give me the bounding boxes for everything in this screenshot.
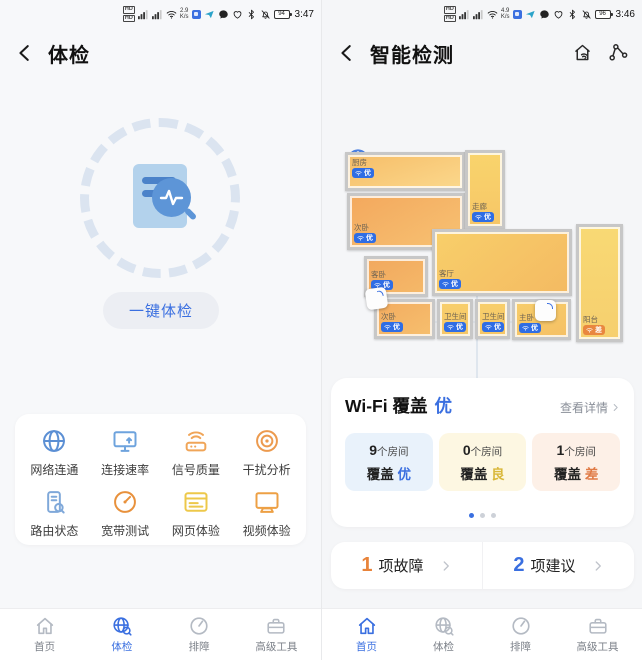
network-speed: 4.9K/s — [501, 8, 510, 20]
app-notification-icon — [204, 9, 215, 20]
health-icon — [433, 615, 455, 637]
coverage-badge: 差 — [583, 325, 605, 335]
header-actions — [572, 42, 629, 63]
tool-web-experience[interactable]: 网页体验 — [161, 488, 232, 539]
wifi-icon — [442, 281, 449, 287]
room-label: 卫生间 优 — [482, 313, 505, 332]
bottom-nav: 首页 体检 排障 高级工具 — [322, 608, 642, 660]
room-count: 9个房间 — [369, 442, 408, 459]
nav-label: 体检 — [433, 639, 454, 654]
view-details-link[interactable]: 查看详情 — [560, 399, 620, 416]
gauge-icon — [188, 615, 210, 637]
room-name: 次卧 — [354, 224, 369, 232]
tool-signal-quality[interactable]: 信号质量 — [161, 427, 232, 478]
tool-label: 网络连通 — [30, 461, 78, 478]
page-title: 智能检测 — [370, 39, 454, 68]
app-notification-icon — [525, 9, 536, 20]
nav-item-checkup[interactable]: 体检 — [416, 615, 472, 654]
room: 走廊 优 — [465, 150, 505, 229]
room: 卫生间 优 — [437, 299, 473, 339]
wifi-icon — [485, 324, 492, 330]
coverage-badge: 优 — [444, 322, 466, 332]
tool-interference-analysis[interactable]: 干扰分析 — [231, 427, 302, 478]
battery-icon: 96 — [595, 10, 611, 19]
volte-hd-icon: HDHD — [123, 6, 135, 22]
tool-video-experience[interactable]: 视频体验 — [231, 488, 302, 539]
home-icon — [356, 615, 378, 637]
room-name: 主卧 — [519, 314, 534, 322]
room-name: 卫生间 — [444, 313, 467, 321]
toolbox-icon — [587, 615, 609, 637]
wifi-icon — [355, 170, 362, 176]
webpage-icon — [182, 488, 210, 516]
room-name: 客卧 — [371, 271, 386, 279]
coverage-stat: 0个房间 覆盖 良 — [439, 433, 527, 491]
screenshot-root: HDHD 2.9K/s 94 3:47 体检 — [0, 0, 642, 660]
signal-router-icon — [182, 427, 210, 455]
room: 客厅 优 — [432, 229, 572, 296]
pagination-dot[interactable] — [480, 513, 485, 518]
room-name: 阳台 — [583, 316, 598, 324]
wifi-icon — [522, 325, 529, 331]
tool-connection-speed[interactable]: 连接速率 — [90, 427, 161, 478]
interference-icon — [253, 427, 281, 455]
network-speed: 2.9K/s — [180, 8, 189, 20]
tool-label: 宽带测试 — [101, 522, 149, 539]
floorplan-map[interactable]: 互联网 厨房 优 次卧 优 走廊 优 客厅 优 客卧 优 — [322, 70, 642, 370]
chevron-right-icon — [611, 403, 620, 412]
coverage-badge: 优 — [519, 323, 541, 333]
coverage-badge: 优 — [472, 212, 494, 222]
pagination-dots[interactable] — [331, 513, 634, 518]
room: 阳台 差 — [576, 224, 623, 342]
wifi-card-title: Wi-Fi 覆盖优 — [345, 393, 452, 418]
router-icon — [365, 287, 389, 311]
tool-network-connectivity[interactable]: 网络连通 — [19, 427, 90, 478]
nav-label: 排障 — [510, 639, 531, 654]
signal-icon — [138, 9, 149, 20]
room-label: 阳台 差 — [583, 316, 605, 335]
bell-muted-icon — [581, 9, 592, 20]
app-notification-icon — [513, 10, 522, 19]
video-icon — [253, 488, 281, 516]
suggestions-item[interactable]: 2 项建议 — [482, 542, 634, 589]
nav-item-troubleshoot[interactable]: 排障 — [171, 615, 227, 654]
faults-item[interactable]: 1 项故障 — [331, 542, 482, 589]
coverage-stat: 9个房间 覆盖 优 — [345, 433, 433, 491]
volte-hd-icon: HDHD — [444, 6, 456, 22]
pagination-dot[interactable] — [491, 513, 496, 518]
wifi-icon — [357, 235, 364, 241]
health-icon — [111, 615, 133, 637]
topology-icon[interactable] — [608, 42, 629, 63]
signal-icon — [459, 9, 470, 20]
room-label: 客厅 优 — [439, 270, 461, 289]
page-title: 体检 — [48, 39, 90, 68]
speedtest-icon — [111, 488, 139, 516]
nav-item-checkup[interactable]: 体检 — [94, 615, 150, 654]
chevron-right-icon — [592, 560, 604, 572]
one-key-checkup-button[interactable]: 一键体检 — [103, 292, 219, 329]
room: 卫生间 优 — [475, 299, 510, 339]
toolbox-icon — [265, 615, 287, 637]
tool-label: 网页体验 — [172, 522, 220, 539]
room-label: 走廊 优 — [472, 203, 494, 222]
nav-item-advanced-tools[interactable]: 高级工具 — [570, 615, 626, 654]
bluetooth-icon — [567, 9, 578, 20]
message-icon — [539, 9, 550, 20]
room-label: 次卧 优 — [381, 313, 403, 332]
room: 厨房 优 — [345, 152, 465, 191]
coverage-grade: 覆盖 差 — [554, 463, 598, 483]
room-name: 厨房 — [352, 159, 367, 167]
tool-label: 信号质量 — [172, 461, 220, 478]
coverage-grade: 优 — [434, 396, 452, 416]
heart-icon — [553, 9, 564, 20]
tools-grid: 网络连通 连接速率 信号质量 干扰分析 路由状态 宽带测试 网页体验 视频体验 — [15, 414, 306, 545]
status-time: 3:47 — [295, 9, 314, 20]
nav-label: 首页 — [34, 639, 55, 654]
room-label: 卫生间 优 — [444, 313, 467, 332]
heart-icon — [232, 9, 243, 20]
home-wifi-icon[interactable] — [572, 42, 593, 63]
nav-item-home[interactable]: 首页 — [339, 615, 395, 654]
nav-label: 高级工具 — [255, 639, 297, 654]
room-name: 走廊 — [472, 203, 487, 211]
room-name: 客厅 — [439, 270, 454, 278]
wifi-coverage-card: Wi-Fi 覆盖优 查看详情 9个房间 覆盖 优0个房间 覆盖 良1个房间 覆盖… — [331, 378, 634, 527]
tool-label: 干扰分析 — [243, 461, 291, 478]
router-icon — [535, 300, 556, 321]
tool-label: 连接速率 — [101, 461, 149, 478]
signal-icon — [152, 9, 163, 20]
home-icon — [34, 615, 56, 637]
tool-label: 视频体验 — [243, 522, 291, 539]
bottom-nav: 首页 体检 排障 高级工具 — [0, 608, 321, 660]
nav-label: 首页 — [356, 639, 377, 654]
nav-item-troubleshoot[interactable]: 排障 — [493, 615, 549, 654]
router-status-icon — [40, 488, 68, 516]
room-label: 次卧 优 — [354, 224, 376, 243]
wifi-icon — [586, 327, 593, 333]
panel-smart-detection: HDHD 4.9K/s 96 3:46 智能检测 互联网 — [321, 0, 642, 660]
back-arrow-icon[interactable] — [14, 42, 36, 64]
status-time: 3:46 — [616, 9, 635, 20]
coverage-grade: 覆盖 良 — [460, 463, 504, 483]
room-name: 次卧 — [381, 313, 396, 321]
panel-health-check: HDHD 2.9K/s 94 3:47 体检 — [0, 0, 321, 660]
tool-label: 路由状态 — [30, 522, 78, 539]
wifi-icon — [447, 324, 454, 330]
pagination-dot[interactable] — [469, 513, 474, 518]
issues-card: 1 项故障 2 项建议 — [331, 542, 634, 589]
coverage-badge: 优 — [352, 168, 374, 178]
room-count: 0个房间 — [463, 442, 502, 459]
bluetooth-icon — [246, 9, 257, 20]
tool-broadband-test[interactable]: 宽带测试 — [90, 488, 161, 539]
wifi-icon — [475, 214, 482, 220]
room-name: 卫生间 — [482, 313, 505, 321]
coverage-grade: 覆盖 优 — [367, 463, 411, 483]
nav-label: 体检 — [111, 639, 132, 654]
coverage-stats: 9个房间 覆盖 优0个房间 覆盖 良1个房间 覆盖 差 — [345, 433, 620, 491]
nav-label: 排障 — [189, 639, 210, 654]
globe-icon — [40, 427, 68, 455]
coverage-badge: 优 — [381, 322, 403, 332]
nav-item-home[interactable]: 首页 — [17, 615, 73, 654]
status-bar: HDHD 4.9K/s 96 3:46 — [322, 6, 635, 22]
back-arrow-icon[interactable] — [336, 42, 358, 64]
gauge-icon — [510, 615, 532, 637]
wifi-icon — [487, 9, 498, 20]
chevron-right-icon — [440, 560, 452, 572]
coverage-badge: 优 — [354, 233, 376, 243]
status-bar: HDHD 2.9K/s 94 3:47 — [0, 6, 314, 22]
speed-monitor-icon — [111, 427, 139, 455]
app-notification-icon — [192, 10, 201, 19]
bell-muted-icon — [260, 9, 271, 20]
wifi-icon — [384, 324, 391, 330]
coverage-badge: 优 — [439, 279, 461, 289]
app-header: 体检 — [0, 36, 321, 70]
tool-router-status[interactable]: 路由状态 — [19, 488, 90, 539]
nav-label: 高级工具 — [577, 639, 619, 654]
wifi-icon — [166, 9, 177, 20]
room-label: 厨房 优 — [352, 159, 374, 178]
battery-icon: 94 — [274, 10, 290, 19]
room-count: 1个房间 — [557, 442, 596, 459]
nav-item-advanced-tools[interactable]: 高级工具 — [248, 615, 304, 654]
signal-icon — [473, 9, 484, 20]
coverage-stat: 1个房间 覆盖 差 — [532, 433, 620, 491]
coverage-badge: 优 — [482, 322, 504, 332]
message-icon — [218, 9, 229, 20]
